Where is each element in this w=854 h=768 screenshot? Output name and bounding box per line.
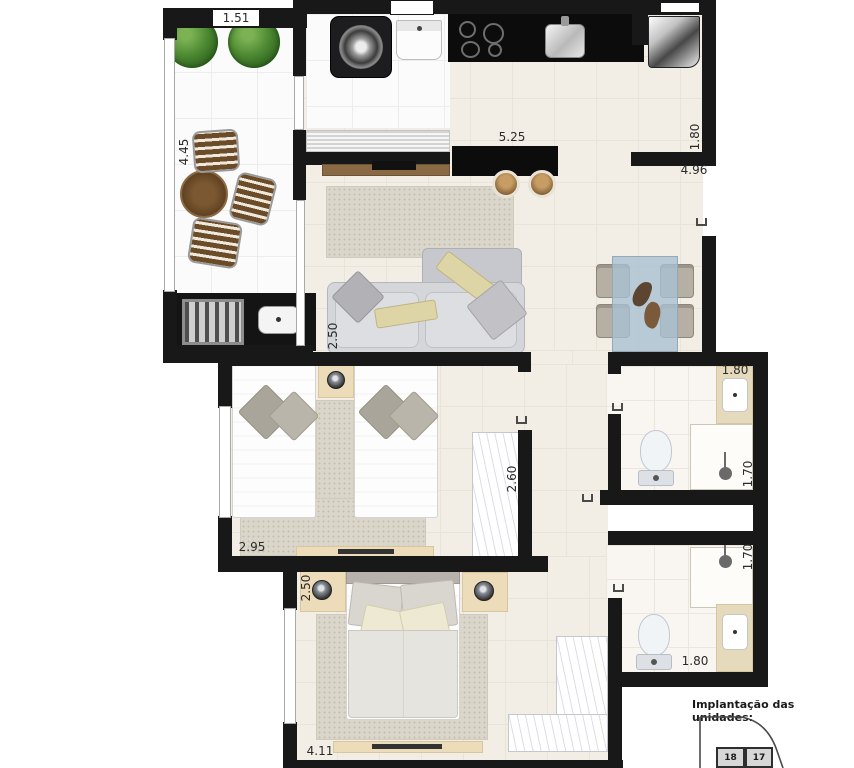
wall [518,430,532,556]
wall [218,352,232,408]
wall-opening [660,2,700,13]
balcony-glass-door [296,200,305,346]
dim-entry-width: 1.80 [688,117,702,157]
wall [518,352,531,372]
dresser-handle [338,549,394,554]
wall [608,672,768,687]
wall [293,0,306,76]
single-bed [354,364,438,518]
bar-stool [528,170,556,198]
shower-head-icon [719,555,732,568]
dim-balcony-opening: 1.51 [212,11,260,25]
lamp-icon [327,371,345,389]
dining-table [612,256,678,352]
flush-icon [651,659,657,665]
burner-icon [459,21,476,38]
balcony-chair [192,128,241,173]
burner-icon [461,41,480,58]
burner-icon [483,23,504,44]
wall [702,4,716,166]
wall [283,556,297,610]
door-marker-icon [613,584,624,592]
unit-18: 18 [716,747,745,768]
faucet-icon [561,16,569,26]
burner-icon [488,43,502,57]
grill-icon [182,299,244,345]
duvet [348,630,458,718]
wall [608,414,621,492]
wall [218,556,548,572]
faucet-icon [417,26,422,31]
dim-bath2-shower: 1.70 [741,537,755,577]
door-marker-icon [582,494,593,502]
laundry-glass-door [294,76,304,130]
bedroom1-window [219,406,231,518]
wall [293,130,306,200]
dim-living-length: 4.96 [668,163,720,177]
bedroom2-closet [508,714,608,752]
dim-bedroom2-width: 4.11 [296,744,344,758]
wall [283,760,623,768]
kitchen-sink [545,24,585,58]
toilet [640,430,672,472]
dim-bath1-width: 1.80 [716,363,754,377]
fridge-icon [648,16,700,68]
sofa [327,248,525,354]
wall [753,352,768,687]
wall [632,0,648,45]
faucet-icon [733,630,737,634]
floorplan: 1.51 4.45 5.25 1.80 4.96 2.50 2.95 2.60 … [0,0,854,768]
dim-bedroom2-depth: 2.50 [299,568,313,608]
unit-17: 17 [745,747,773,768]
balcony-railing [164,38,175,292]
dim-bedroom1-width: 2.95 [228,540,276,554]
wall [702,236,716,356]
balcony-table [180,170,228,218]
wall [163,8,177,40]
wall [608,352,621,374]
wall [283,722,297,762]
door-marker-icon [696,218,707,226]
dim-living-width: 2.50 [326,316,340,356]
balcony-chair [187,216,244,269]
flush-icon [653,475,659,481]
lamp-icon [312,580,332,600]
dim-counter-length: 5.25 [488,130,536,144]
dresser-handle [372,744,442,749]
wall-cabinet [390,0,434,15]
kitchen-bench [306,130,450,152]
dim-bath2-width: 1.80 [674,654,716,668]
faucet-icon [276,317,281,322]
faucet-icon [733,393,737,397]
bedroom2-window [284,608,296,724]
shower-head-icon [719,467,732,480]
dim-bedroom1-closet: 2.60 [505,459,519,499]
door-marker-icon [516,416,527,424]
washer-drum-icon [339,25,383,69]
toilet [638,614,670,656]
door-marker-icon [612,403,623,411]
dim-bath1-shower: 1.70 [741,454,755,494]
single-bed [232,364,316,518]
lamp-icon [474,581,494,601]
wall [218,352,530,366]
tv-icon [372,161,416,170]
bar-stool [492,170,520,198]
wall [296,0,648,14]
dim-balcony-length: 4.45 [177,132,191,172]
